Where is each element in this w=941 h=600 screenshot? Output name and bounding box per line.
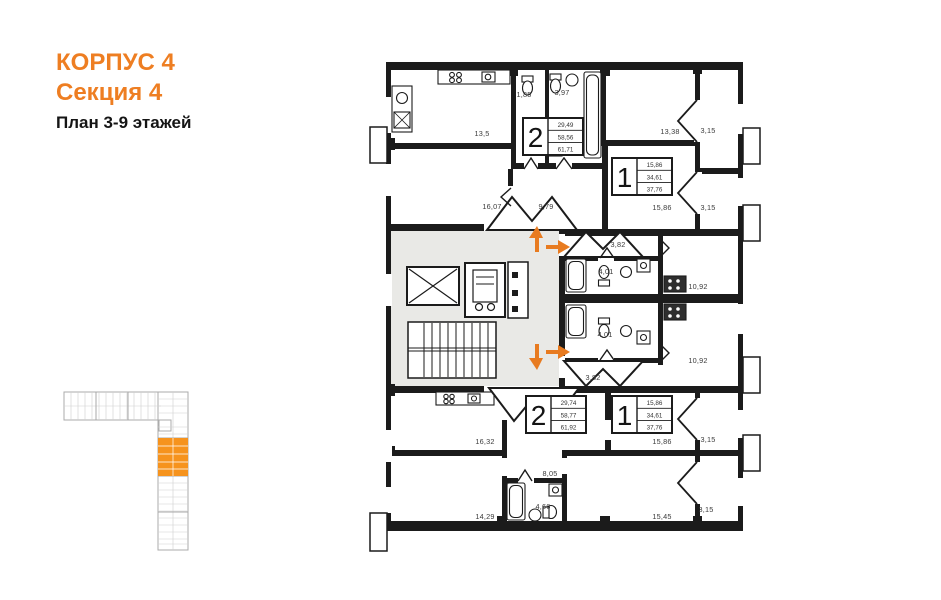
svg-text:29,74: 29,74 [561, 400, 577, 407]
svg-text:37,76: 37,76 [647, 425, 663, 432]
svg-text:29,49: 29,49 [558, 122, 574, 129]
room-area-label: 1,85 [516, 90, 531, 99]
svg-text:34,61: 34,61 [647, 412, 663, 419]
room-area-label: 8,05 [542, 469, 557, 478]
room-area-label: 10,92 [688, 282, 707, 291]
apartment-stamp-1-bottom: 1 15,86 34,61 37,76 [612, 396, 672, 433]
room-area-label: 13,5 [474, 129, 489, 138]
floor-plan: 13,5 1,85 3,97 13,38 3,15 16,07 9,79 15,… [368, 52, 762, 552]
room-area-label: 3,97 [554, 88, 569, 97]
room-area-label: 3,82 [585, 373, 600, 382]
utility-shaft [508, 262, 528, 318]
room-area-label: 4,66 [535, 502, 550, 511]
room-area-label: 4,01 [598, 267, 613, 276]
section-title: Секция 4 [56, 78, 191, 108]
svg-text:34,61: 34,61 [647, 174, 663, 181]
room-area-label: 3,15 [700, 435, 715, 444]
room-area-label: 9,79 [538, 202, 553, 211]
svg-text:1: 1 [617, 162, 633, 193]
room-area-label: 13,38 [660, 127, 679, 136]
room-area-label: 14,29 [475, 512, 494, 521]
floors-subtitle: План 3-9 этажей [56, 112, 191, 133]
svg-text:58,56: 58,56 [558, 134, 574, 141]
stairs-icon [408, 322, 496, 378]
svg-text:61,71: 61,71 [558, 147, 574, 154]
svg-text:37,76: 37,76 [647, 187, 663, 194]
svg-text:58,77: 58,77 [561, 412, 577, 419]
apartment-stamp-1-top: 1 15,86 34,61 37,76 [612, 158, 672, 195]
plan-title: КОРПУС 4 Секция 4 План 3-9 этажей [56, 48, 191, 133]
room-area-label: 10,92 [688, 356, 707, 365]
svg-text:2: 2 [528, 122, 544, 153]
building-minimap [55, 383, 205, 558]
room-area-label: 4,01 [597, 330, 612, 339]
svg-text:2: 2 [531, 400, 547, 431]
room-area-label: 15,86 [652, 203, 671, 212]
room-area-label: 3,15 [698, 505, 713, 514]
apartment-stamp-2-top: 2 29,49 58,56 61,71 [523, 118, 583, 155]
room-area-label: 3,82 [610, 240, 625, 249]
building-title: КОРПУС 4 [56, 48, 191, 78]
apartment-stamp-2-bottom: 2 29,74 58,77 61,92 [526, 396, 586, 433]
svg-text:61,92: 61,92 [561, 425, 577, 432]
svg-text:15,86: 15,86 [647, 162, 663, 169]
room-area-label: 15,86 [652, 437, 671, 446]
room-area-label: 3,15 [700, 126, 715, 135]
room-area-label: 3,15 [700, 203, 715, 212]
svg-text:15,86: 15,86 [647, 400, 663, 407]
room-area-label: 16,07 [482, 202, 501, 211]
room-area-label: 16,32 [475, 437, 494, 446]
room-area-label: 15,45 [652, 512, 671, 521]
svg-text:1: 1 [617, 400, 633, 431]
